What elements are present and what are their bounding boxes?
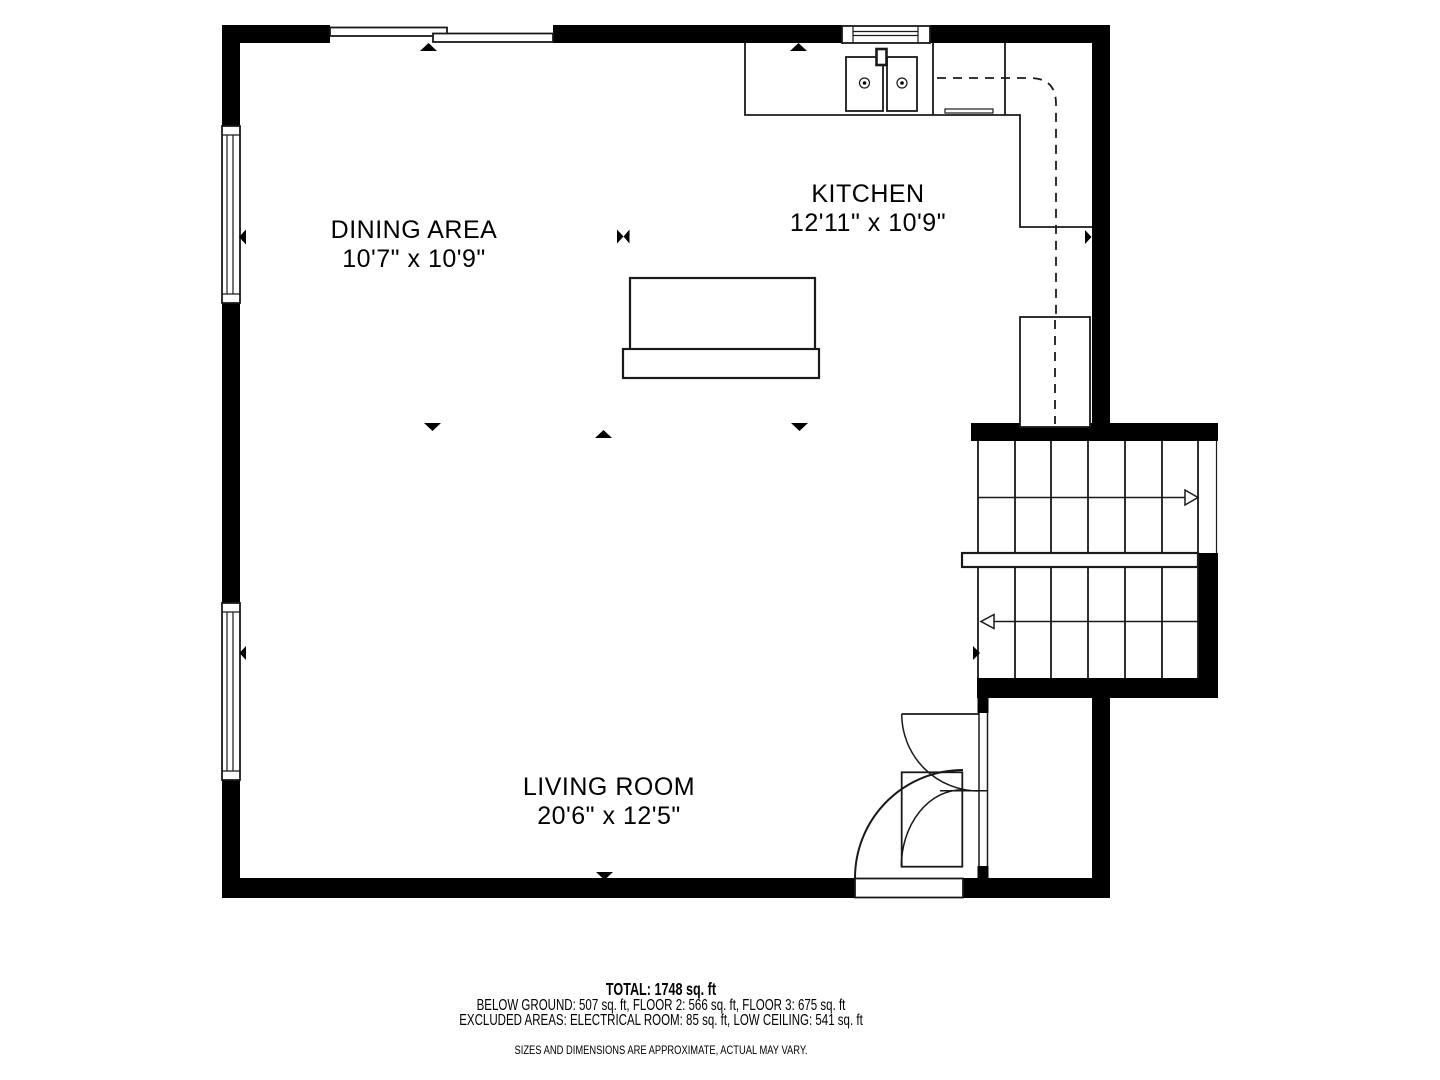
kitchen-sink: [846, 49, 917, 111]
exterior-walls: [222, 25, 1218, 898]
marker-up-triangle: [595, 430, 612, 438]
floor-plan-page: DINING AREA 10'7" x 10'9" KITCHEN 12'11"…: [0, 0, 1440, 1080]
room-label-kitchen: KITCHEN 12'11" x 10'9": [790, 180, 946, 238]
table-bench: [623, 349, 819, 378]
wall-stair-right: [1198, 553, 1218, 698]
window-left-lower: [222, 603, 240, 780]
wall-right-upper: [1092, 25, 1110, 441]
marker-up-triangle: [420, 43, 437, 51]
room-dimensions: 10'7" x 10'9": [331, 245, 498, 274]
slider-panel-right: [433, 34, 553, 43]
wall-stair-top: [971, 423, 1218, 441]
window-frame: [222, 126, 240, 303]
marker-right-triangle: [1085, 230, 1092, 244]
wall-stair-bottom: [977, 678, 1218, 698]
wall-left-upper: [222, 25, 240, 126]
wall-bottom-left: [222, 878, 855, 898]
marker-down-triangle: [791, 423, 808, 431]
door-swing-arc: [902, 714, 979, 791]
sink-faucet: [877, 49, 887, 65]
door-jamb-block: [978, 698, 989, 713]
cabinet-front-detail: [945, 109, 993, 113]
stair-arrowhead-left: [981, 615, 994, 629]
dining-table: [623, 278, 819, 378]
room-label-dining: DINING AREA 10'7" x 10'9": [331, 216, 498, 274]
marker-down-triangle: [424, 423, 441, 431]
room-name: DINING AREA: [331, 216, 498, 245]
stair-treads-lower: [978, 567, 1198, 678]
room-label-living: LIVING ROOM 20'6" x 12'5": [523, 773, 695, 831]
door-jamb-block: [978, 866, 989, 880]
room-dimensions: 20'6" x 12'5": [523, 802, 695, 831]
wall-bottom-right: [963, 878, 1110, 898]
staircase: [962, 441, 1217, 678]
dimension-markers: [239, 43, 1092, 880]
footer-disclaimer: SIZES AND DIMENSIONS ARE APPROXIMATE, AC…: [514, 1044, 807, 1056]
door-swing-arc-large: [855, 770, 963, 878]
slider-panel-left: [330, 28, 447, 37]
marker-bowtie-right: [617, 230, 624, 244]
wall-closet-right: [1092, 698, 1110, 898]
door-swing-arc: [901, 790, 962, 867]
marker-right-triangle: [973, 646, 980, 660]
floor-plan-drawing: [0, 0, 1440, 1080]
window-frame: [222, 603, 240, 780]
room-dimensions: 12'11" x 10'9": [790, 209, 946, 238]
kitchen-window-top: [842, 26, 930, 43]
bottom-door-opening: [855, 879, 963, 898]
marker-up-triangle: [790, 43, 807, 51]
stair-arrowhead-right: [1185, 490, 1198, 505]
sink-drain-dot: [900, 81, 904, 85]
stair-landing-divider: [962, 553, 1198, 567]
entry-doors: [855, 698, 989, 898]
footer-excluded-areas: EXCLUDED AREAS: ELECTRICAL ROOM: 85 sq. …: [459, 1013, 863, 1029]
sliding-door-top: [330, 28, 553, 43]
window-frame: [842, 26, 930, 43]
wall-top-middle: [553, 25, 842, 43]
wall-left-middle: [222, 303, 240, 603]
window-left-upper: [222, 126, 240, 303]
footer-total: TOTAL: 1748 sq. ft: [606, 980, 716, 998]
room-name: KITCHEN: [790, 180, 946, 209]
sink-drain-dot: [863, 81, 867, 85]
wall-top-right: [930, 25, 1110, 43]
table-top: [630, 278, 815, 350]
room-name: LIVING ROOM: [523, 773, 695, 802]
marker-bowtie-left: [624, 230, 630, 244]
